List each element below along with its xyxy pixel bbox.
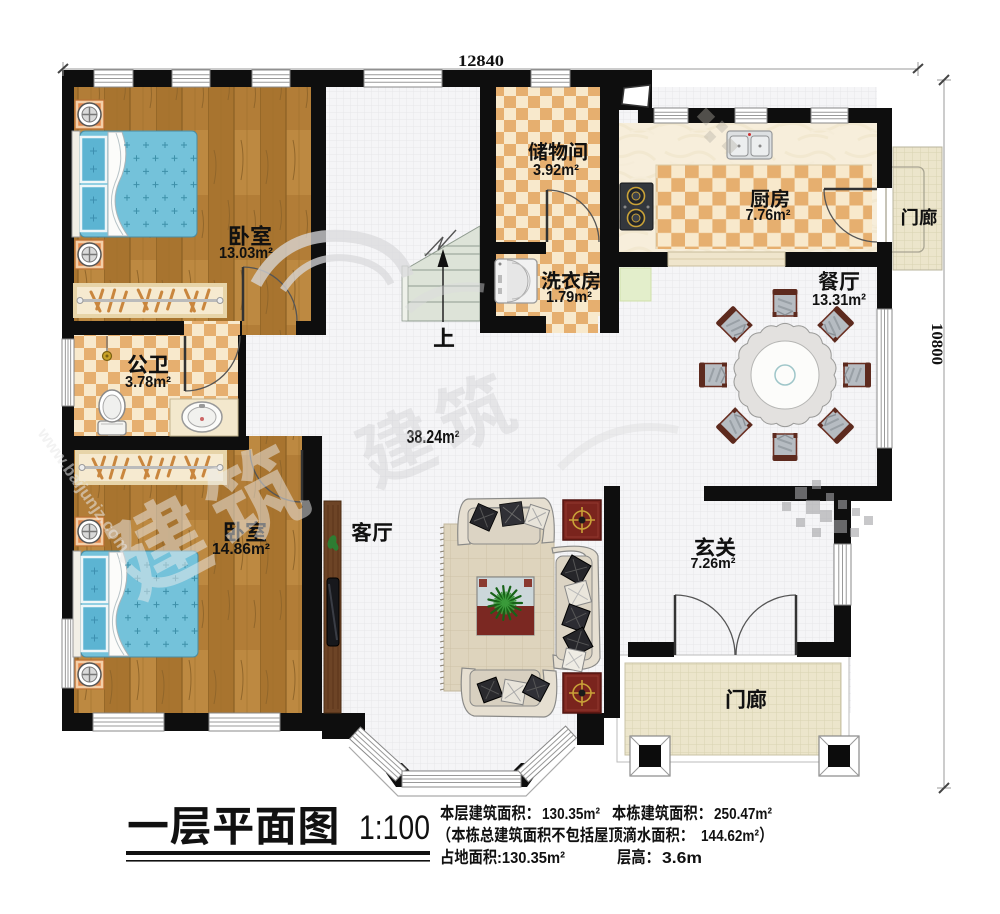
- svg-text:130.35m²: 130.35m²: [542, 806, 600, 823]
- svg-text:10800: 10800: [928, 323, 945, 365]
- svg-text:7.26m²: 7.26m²: [691, 555, 736, 572]
- svg-text:12840: 12840: [458, 53, 504, 70]
- svg-text:7.76m²: 7.76m²: [746, 207, 791, 224]
- svg-text:250.47m²: 250.47m²: [714, 806, 772, 823]
- svg-text:3.78m²: 3.78m²: [125, 374, 171, 391]
- svg-text::130.35m²: :130.35m²: [497, 850, 565, 867]
- svg-text:14.86m²: 14.86m²: [212, 541, 270, 558]
- svg-text:144.62m²: 144.62m²: [701, 828, 759, 845]
- svg-text:3.92m²: 3.92m²: [533, 162, 579, 179]
- svg-text:13.03m²: 13.03m²: [219, 245, 273, 262]
- svg-text:3.6m: 3.6m: [662, 850, 702, 867]
- svg-text:1:100: 1:100: [359, 809, 430, 847]
- svg-text:1.79m²: 1.79m²: [546, 289, 592, 306]
- svg-text:13.31m²: 13.31m²: [812, 292, 866, 309]
